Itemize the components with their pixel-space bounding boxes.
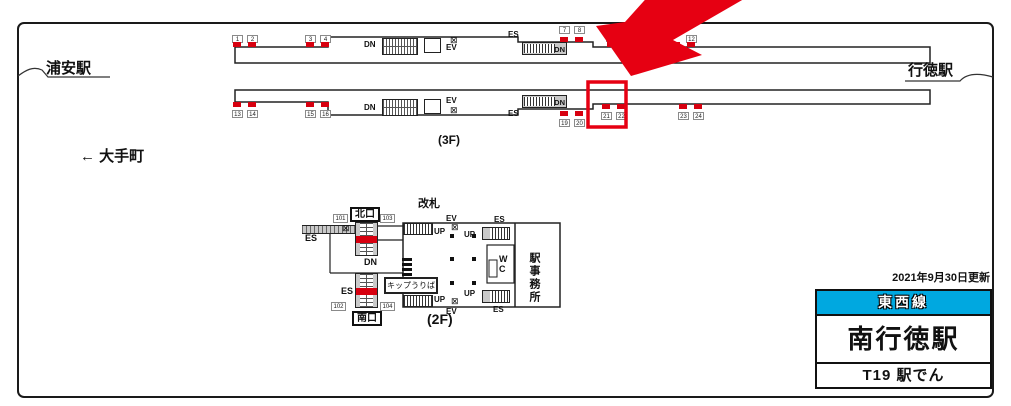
escalator-hatch [524, 97, 555, 106]
ticket-machines-label: キップうりば [384, 277, 438, 294]
gate-dot [472, 281, 476, 285]
ad-marker [672, 42, 680, 47]
stairs-icon [382, 38, 418, 55]
escalator-icon: DN [522, 42, 567, 55]
station-office-label: 駅事務所 [528, 252, 539, 304]
ad-position-box: 9 [606, 34, 617, 42]
floor-3f-label: (3F) [438, 134, 460, 146]
elevator-icon: ⊠ [342, 224, 350, 233]
ad-marker [233, 42, 241, 47]
ad-position-box: 10 [621, 34, 632, 42]
ad-position-box: 20 [574, 119, 585, 127]
gate-bar [402, 258, 412, 261]
south-escalator-label: ES [341, 287, 353, 296]
escalator-cap [483, 291, 490, 302]
ad-marker [607, 42, 615, 47]
ticket-gate-label: 改札 [418, 199, 440, 210]
ad-position-box: 7 [559, 26, 570, 34]
wc-label-c: C [499, 265, 506, 274]
ad-marker [560, 111, 568, 116]
ad-position-box: 101 [333, 214, 348, 223]
elevator-icon: ⊠ [450, 106, 458, 115]
ad-marker [248, 102, 256, 107]
ad-marker [306, 102, 314, 107]
ad-marker [679, 104, 687, 109]
wc-stall [489, 260, 497, 277]
escalator-label: ES [508, 31, 519, 39]
gate-bar [402, 268, 412, 271]
escalator-band [356, 236, 377, 243]
south-stairs-icon [355, 273, 378, 308]
stair-landing [424, 38, 441, 53]
up-label: UP [434, 228, 445, 236]
gate-dot [450, 234, 454, 238]
elevator-label: EV [446, 44, 457, 52]
ad-position-box: 14 [247, 110, 258, 118]
line-name-badge: 東西線 [817, 291, 990, 316]
up-stairs-icon [403, 295, 433, 307]
escalator-down-label: DN [554, 45, 565, 54]
updated-date: 2021年9月30日更新 [813, 273, 990, 284]
up-escalator-icon [482, 227, 510, 240]
ad-position-box: 19 [559, 119, 570, 127]
stairs-down-label: DN [364, 41, 376, 49]
ad-marker [233, 102, 241, 107]
ad-marker [602, 104, 610, 109]
stair-landing [424, 99, 441, 114]
ad-position-box: 15 [305, 110, 316, 118]
north-stairs-icon [355, 222, 378, 256]
ad-position-box: 102 [331, 302, 346, 311]
ad-marker [575, 37, 583, 42]
ad-position-box: 22 [616, 112, 627, 120]
station-code: T19 駅でん [817, 362, 990, 389]
stairs-down-label: DN [364, 258, 377, 267]
up-label: UP [434, 296, 445, 304]
ad-marker [560, 37, 568, 42]
ad-marker [306, 42, 314, 47]
stairs-down-label: DN [364, 104, 376, 112]
highlight-arrow-icon [596, 0, 756, 76]
escalator-band [356, 288, 377, 295]
escalator-cap [483, 228, 490, 239]
station-name: 南行徳駅 [817, 316, 990, 362]
ad-marker [687, 42, 695, 47]
elevator-icon: ⊠ [451, 297, 459, 306]
ad-marker [622, 42, 630, 47]
ad-position-box: 21 [601, 112, 612, 120]
ad-marker [248, 42, 256, 47]
gate-bar [402, 273, 412, 276]
direction-label: ← 大手町 [80, 149, 144, 164]
escalator-hatch [524, 44, 555, 53]
ad-marker [575, 111, 583, 116]
ad-position-box: 16 [320, 110, 331, 118]
stairs-icon [382, 99, 418, 116]
west-escalator-label: ES [305, 234, 317, 243]
ad-position-box: 23 [678, 112, 689, 120]
right-station-label: 行徳駅 [908, 63, 953, 78]
station-info-panel: 東西線 南行徳駅 T19 駅でん [815, 289, 992, 389]
station-map: 浦安駅 行徳駅 ← 大手町 (3F) DN ⊠ EV ES DN 1 2 3 4… [0, 0, 1011, 406]
gate-dot [472, 257, 476, 261]
elevator-label: EV [446, 97, 457, 105]
ad-position-box: 8 [574, 26, 585, 34]
up-label: UP [464, 290, 475, 298]
ad-marker [321, 102, 329, 107]
elevator-icon: ⊠ [451, 223, 459, 232]
ad-position-box: 13 [232, 110, 243, 118]
escalator-label: ES [494, 216, 505, 224]
up-stairs-icon [403, 223, 433, 235]
ad-position-box: 104 [380, 302, 395, 311]
gate-dot [450, 281, 454, 285]
north-exit-label: 北口 [350, 207, 380, 222]
gate-dot [450, 257, 454, 261]
left-station-label: 浦安駅 [46, 61, 91, 76]
gate-dot [472, 234, 476, 238]
gate-bar [402, 263, 412, 266]
escalator-label: ES [508, 110, 519, 118]
ad-marker [617, 104, 625, 109]
ad-marker [321, 42, 329, 47]
ad-position-box: 24 [693, 112, 704, 120]
up-escalator-icon [482, 290, 510, 303]
escalator-down-label: DN [554, 98, 565, 107]
wc-label-w: W [499, 255, 508, 264]
elevator-label: EV [446, 308, 457, 316]
escalator-label: ES [493, 306, 504, 314]
escalator-icon: DN [522, 95, 567, 108]
ad-position-box: 103 [380, 214, 395, 223]
ad-marker [694, 104, 702, 109]
south-exit-label: 南口 [352, 311, 382, 326]
